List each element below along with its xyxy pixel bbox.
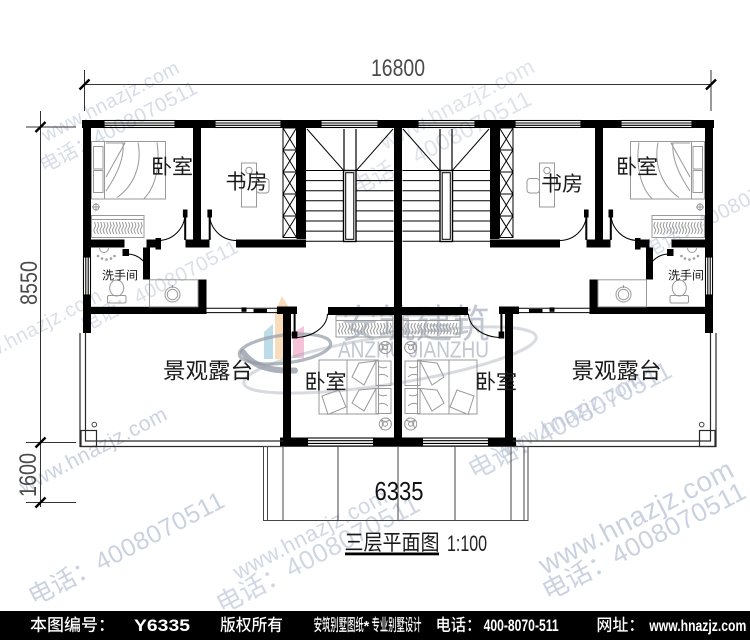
svg-text:8550: 8550 — [16, 261, 43, 305]
svg-text:400-8070-511: 400-8070-511 — [484, 616, 559, 635]
svg-text:*: * — [364, 618, 370, 635]
svg-text:1600: 1600 — [15, 453, 42, 497]
svg-text:Y6335: Y6335 — [134, 616, 190, 635]
svg-text:16800: 16800 — [371, 55, 425, 82]
svg-text:1:100: 1:100 — [447, 531, 487, 556]
svg-text:6335: 6335 — [375, 476, 424, 506]
svg-text:www.hnazjz.com: www.hnazjz.com — [649, 618, 747, 635]
